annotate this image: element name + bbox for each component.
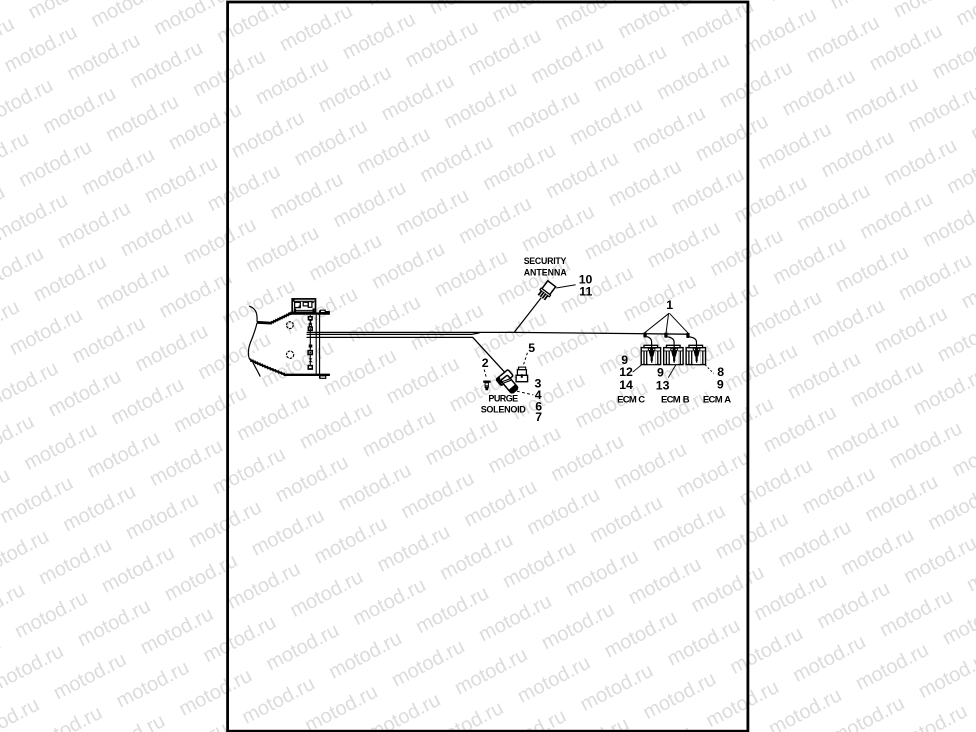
svg-text:2: 2 — [482, 356, 489, 370]
svg-text:C: C — [638, 394, 645, 405]
svg-text:PURGE: PURGE — [488, 393, 518, 403]
svg-text:1: 1 — [666, 298, 673, 312]
svg-text:B: B — [683, 394, 690, 405]
svg-text:ECM: ECM — [661, 394, 681, 405]
svg-text:5: 5 — [528, 341, 535, 355]
svg-text:ECM: ECM — [617, 394, 637, 405]
svg-text:ANTENNA: ANTENNA — [524, 268, 568, 278]
svg-text:12: 12 — [619, 365, 633, 379]
svg-text:11: 11 — [579, 285, 592, 299]
svg-text:A: A — [724, 394, 731, 405]
svg-text:9: 9 — [657, 365, 664, 379]
svg-text:13: 13 — [656, 379, 670, 393]
svg-text:14: 14 — [619, 378, 633, 392]
svg-text:SOLENOID: SOLENOID — [481, 405, 527, 415]
svg-text:SECURITY: SECURITY — [524, 256, 567, 266]
svg-text:7: 7 — [535, 410, 542, 424]
svg-text:ECM: ECM — [703, 394, 723, 405]
svg-text:9: 9 — [717, 377, 724, 391]
